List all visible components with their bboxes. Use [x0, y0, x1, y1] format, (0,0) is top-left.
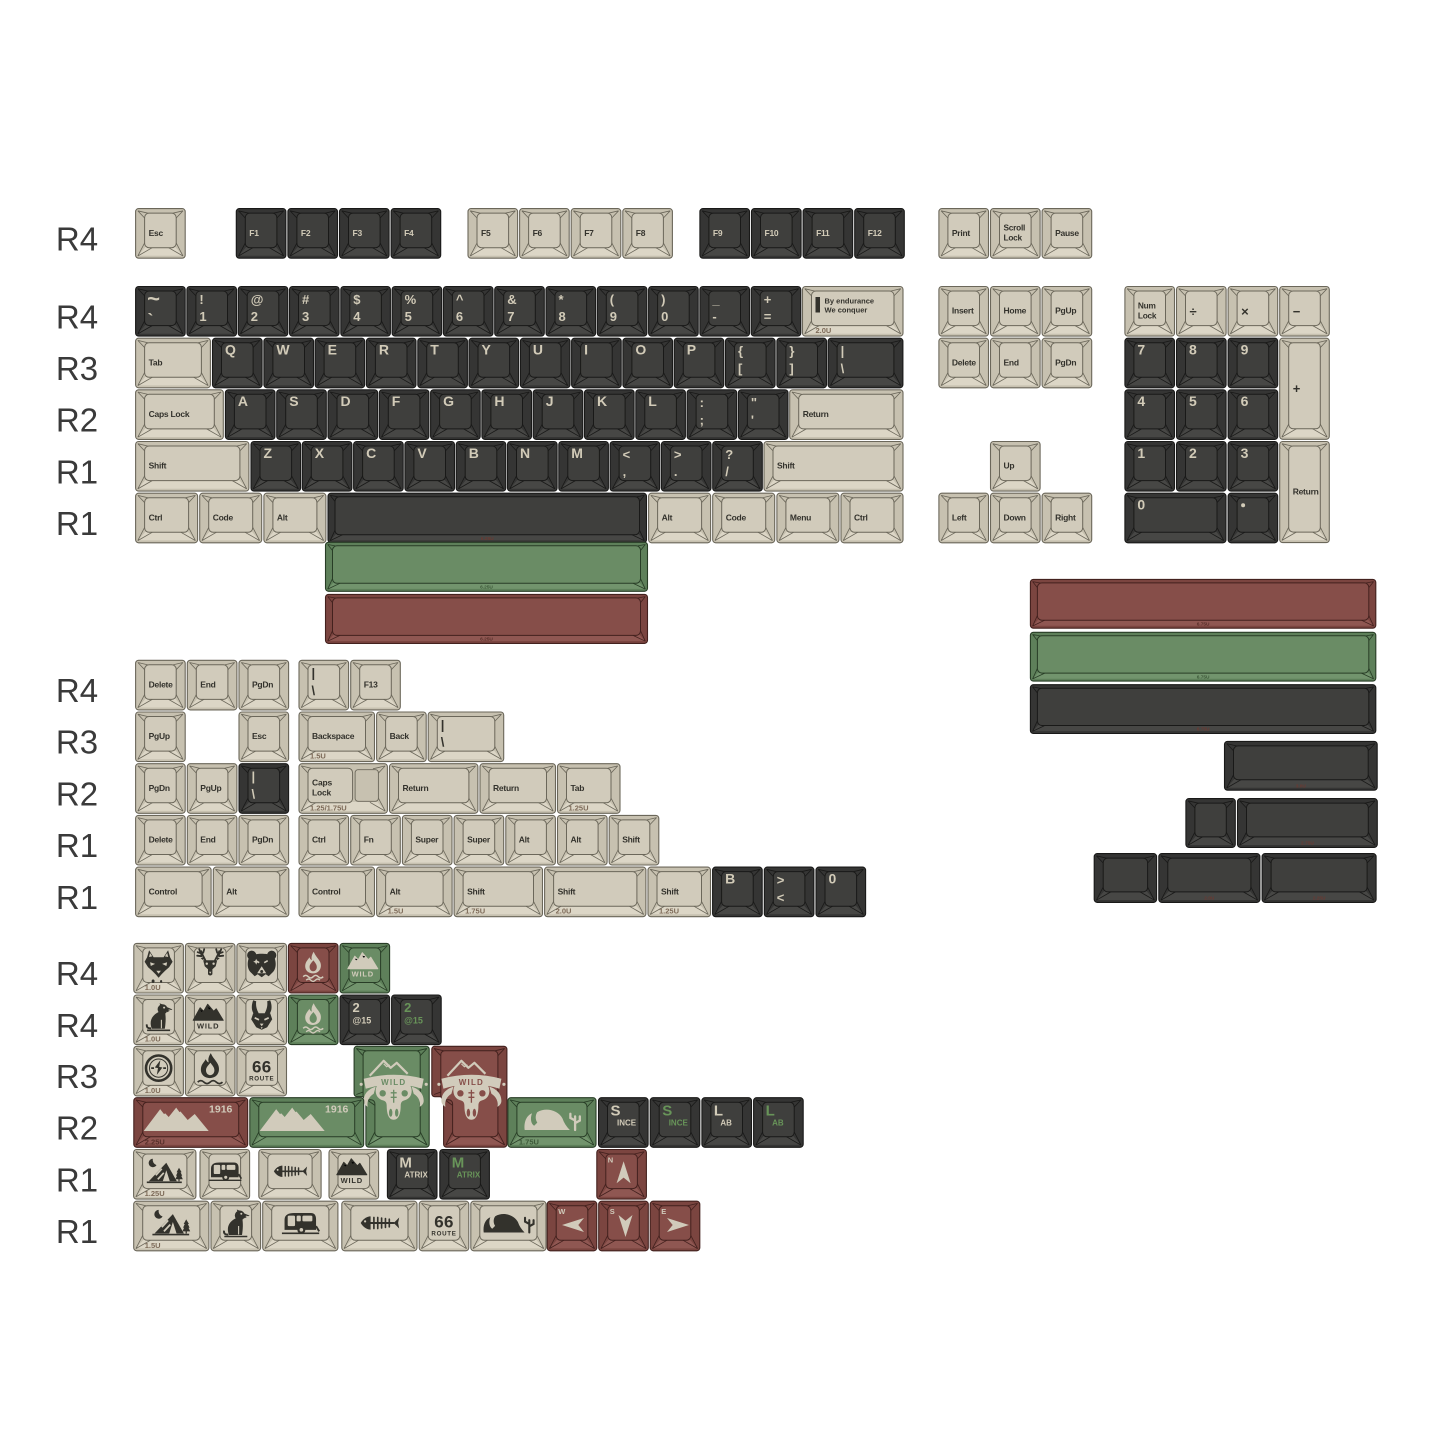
svg-text:Return: Return: [403, 783, 429, 793]
svg-text:F: F: [392, 393, 401, 409]
svg-text:<: <: [623, 447, 631, 462]
svg-text:Lock: Lock: [312, 788, 332, 798]
svg-text:ATRIX: ATRIX: [457, 1171, 481, 1180]
svg-text:1.25U: 1.25U: [569, 803, 589, 812]
svg-text:0: 0: [1137, 497, 1145, 513]
svg-text:Shift: Shift: [558, 886, 576, 896]
svg-text:Shift: Shift: [777, 461, 795, 471]
svg-text:B: B: [469, 445, 479, 461]
svg-text:Alt: Alt: [571, 835, 582, 845]
svg-text:Insert: Insert: [952, 306, 974, 316]
svg-text:Fn: Fn: [364, 835, 374, 845]
svg-text:Alt: Alt: [226, 886, 237, 896]
svg-text:R4: R4: [56, 1007, 98, 1044]
svg-text:Return: Return: [803, 409, 829, 419]
svg-text:O: O: [635, 342, 646, 358]
svg-text:INCE: INCE: [669, 1119, 689, 1128]
svg-text:WILD: WILD: [459, 1078, 484, 1087]
svg-text:F9: F9: [713, 228, 723, 238]
svg-text:!: !: [199, 292, 203, 307]
svg-text:By endurance: By endurance: [825, 297, 875, 306]
svg-text:}: }: [789, 344, 794, 359]
svg-text:R4: R4: [56, 672, 98, 709]
svg-text:Caps Lock: Caps Lock: [149, 409, 190, 419]
svg-text:3: 3: [302, 309, 309, 324]
svg-text:_: _: [711, 292, 720, 307]
svg-text:?: ?: [725, 447, 733, 462]
svg-text:': ': [751, 413, 754, 428]
svg-text:PgDn: PgDn: [252, 835, 273, 845]
svg-text:R1: R1: [56, 827, 98, 864]
svg-text:Z: Z: [264, 445, 273, 461]
svg-text:;: ;: [700, 413, 704, 428]
svg-text:2: 2: [353, 1000, 360, 1015]
svg-text:R1: R1: [56, 505, 98, 542]
svg-text:R2: R2: [56, 775, 98, 812]
svg-text:\: \: [841, 361, 845, 376]
svg-text:Num: Num: [1138, 300, 1156, 310]
svg-text:@: @: [251, 292, 264, 307]
svg-text:S: S: [610, 1207, 615, 1216]
svg-text:WILD: WILD: [352, 970, 374, 979]
svg-text:|: |: [441, 717, 445, 732]
svg-text:ROUTE: ROUTE: [249, 1076, 274, 1083]
svg-text:3.0U: 3.0U: [1296, 783, 1307, 789]
svg-text:8: 8: [559, 309, 566, 324]
svg-text:7: 7: [1137, 342, 1145, 358]
svg-text:PgUp: PgUp: [149, 731, 170, 741]
svg-text:1.75U: 1.75U: [519, 1137, 539, 1146]
svg-text:C: C: [366, 445, 376, 461]
svg-text:AB: AB: [720, 1119, 732, 1128]
svg-text:6.75U: 6.75U: [1197, 727, 1210, 733]
svg-text:F1: F1: [249, 228, 259, 238]
svg-text:0: 0: [829, 870, 837, 886]
svg-text:2: 2: [404, 1000, 411, 1015]
svg-text:@15: @15: [404, 1016, 423, 1026]
svg-text:Back: Back: [390, 731, 410, 741]
svg-text:Return: Return: [493, 783, 519, 793]
svg-text:PgUp: PgUp: [200, 783, 221, 793]
svg-text:E: E: [661, 1207, 666, 1216]
svg-text:Home: Home: [1004, 306, 1027, 316]
svg-text:Shift: Shift: [149, 461, 167, 471]
svg-text:`: `: [148, 310, 154, 329]
svg-text:6.25U: 6.25U: [480, 637, 493, 643]
svg-text:R2: R2: [56, 1110, 98, 1147]
svg-text:Delete: Delete: [149, 680, 174, 690]
svg-text:2.0U: 2.0U: [816, 326, 832, 335]
svg-text:L: L: [714, 1103, 723, 1120]
svg-text:1.0U: 1.0U: [145, 1035, 161, 1044]
svg-text:Backspace: Backspace: [312, 731, 355, 741]
svg-text:F3: F3: [353, 228, 363, 238]
svg-text:F12: F12: [868, 228, 882, 238]
svg-text:F11: F11: [816, 228, 830, 238]
svg-text:&: &: [507, 292, 516, 307]
svg-text:2.25U: 2.25U: [1313, 896, 1326, 902]
svg-text:@15: @15: [353, 1016, 372, 1026]
svg-text:S: S: [662, 1103, 672, 1120]
svg-text:-: -: [712, 309, 716, 324]
svg-text:3: 3: [1241, 445, 1249, 461]
svg-text:+: +: [764, 292, 772, 307]
svg-text:Menu: Menu: [790, 512, 811, 522]
svg-text:F6: F6: [533, 228, 543, 238]
svg-text:|: |: [312, 666, 316, 681]
svg-text:End: End: [200, 835, 215, 845]
svg-text:=: =: [764, 309, 772, 324]
svg-text:K: K: [597, 393, 607, 409]
svg-text:Alt: Alt: [519, 835, 530, 845]
svg-text:M: M: [452, 1155, 465, 1172]
svg-text:Delete: Delete: [952, 357, 977, 367]
svg-text:(: (: [610, 292, 615, 307]
svg-text:÷: ÷: [1190, 304, 1197, 319]
svg-text:9: 9: [1241, 342, 1249, 358]
svg-text:1.5U: 1.5U: [388, 907, 404, 916]
svg-text:H: H: [494, 393, 504, 409]
svg-text:R2: R2: [56, 402, 98, 439]
svg-text:Esc: Esc: [252, 731, 267, 741]
svg-text:Up: Up: [1004, 461, 1015, 471]
svg-text:PgDn: PgDn: [1055, 357, 1076, 367]
svg-text:1.0U: 1.0U: [145, 1086, 161, 1095]
svg-text:L: L: [648, 393, 657, 409]
svg-text:PgUp: PgUp: [1055, 306, 1076, 316]
svg-text:S: S: [611, 1103, 621, 1120]
svg-text:5: 5: [405, 309, 412, 324]
svg-text:V: V: [417, 445, 427, 461]
svg-text:W: W: [276, 342, 290, 358]
svg-text:F2: F2: [301, 228, 311, 238]
svg-text:Ctrl: Ctrl: [854, 512, 868, 522]
svg-text:ROUTE: ROUTE: [431, 1231, 456, 1238]
svg-text:Print: Print: [952, 228, 971, 238]
svg-text:2.0U: 2.0U: [556, 907, 572, 916]
svg-text:U: U: [533, 342, 543, 358]
svg-text::: :: [700, 395, 704, 410]
svg-text:\: \: [252, 786, 256, 801]
svg-text:2: 2: [1189, 445, 1197, 461]
svg-text:Lock: Lock: [1004, 232, 1023, 242]
svg-text:PgDn: PgDn: [252, 680, 273, 690]
svg-text:INCE: INCE: [617, 1119, 637, 1128]
svg-text:6.25U: 6.25U: [481, 536, 494, 542]
svg-text:B: B: [725, 870, 735, 886]
svg-text:R3: R3: [56, 350, 98, 387]
svg-text:1: 1: [199, 309, 206, 324]
svg-text:Alt: Alt: [662, 512, 673, 522]
svg-text:|: |: [841, 344, 845, 359]
svg-text:Super: Super: [415, 835, 439, 845]
svg-text:S: S: [289, 393, 298, 409]
svg-text:G: G: [443, 393, 454, 409]
svg-text:Y: Y: [482, 342, 492, 358]
svg-text:N: N: [608, 1156, 613, 1165]
svg-text:R1: R1: [56, 453, 98, 490]
svg-text:2.75U: 2.75U: [1301, 841, 1314, 847]
svg-text:5: 5: [1189, 393, 1197, 409]
svg-text:A: A: [238, 393, 248, 409]
svg-text:66: 66: [252, 1058, 272, 1077]
svg-text:Super: Super: [467, 835, 491, 845]
svg-text:%: %: [405, 292, 417, 307]
svg-text:We conquer: We conquer: [825, 306, 868, 315]
svg-text:P: P: [687, 342, 696, 358]
svg-text:>: >: [777, 872, 785, 887]
svg-text:6.25U: 6.25U: [480, 585, 493, 591]
svg-text:^: ^: [456, 292, 464, 307]
svg-text:6.75U: 6.75U: [1197, 621, 1210, 627]
svg-text:ATRIX: ATRIX: [404, 1171, 428, 1180]
svg-text:Alt: Alt: [390, 886, 401, 896]
svg-text:2: 2: [251, 309, 258, 324]
svg-text:[: [: [738, 361, 743, 376]
svg-text:Return: Return: [1293, 486, 1319, 496]
svg-text:1916: 1916: [209, 1104, 233, 1116]
svg-text:1.25U: 1.25U: [659, 907, 679, 916]
svg-text:2.0U: 2.0U: [1204, 896, 1215, 902]
svg-text:Tab: Tab: [149, 357, 163, 367]
svg-text:,: ,: [623, 464, 627, 479]
svg-text:N: N: [520, 445, 530, 461]
svg-text:1.75U: 1.75U: [465, 907, 485, 916]
svg-text:Shift: Shift: [661, 886, 679, 896]
svg-text:1.5U: 1.5U: [145, 1241, 161, 1250]
svg-text:1: 1: [1137, 445, 1145, 461]
svg-text:1.5U: 1.5U: [310, 752, 326, 761]
svg-text:Lock: Lock: [1138, 310, 1157, 320]
svg-text:4: 4: [1137, 393, 1145, 409]
svg-text:Shift: Shift: [467, 886, 485, 896]
svg-text:F7: F7: [584, 228, 594, 238]
svg-text:E: E: [328, 342, 337, 358]
svg-text:66: 66: [434, 1213, 454, 1232]
svg-text:R4: R4: [56, 955, 98, 992]
svg-text:Shift: Shift: [622, 835, 640, 845]
svg-text:Ctrl: Ctrl: [149, 512, 163, 522]
svg-text:.: .: [674, 464, 678, 479]
svg-text:WILD: WILD: [381, 1078, 406, 1087]
svg-text:1.0U: 1.0U: [145, 983, 161, 992]
svg-text:End: End: [200, 680, 215, 690]
svg-text:D: D: [341, 393, 351, 409]
svg-text:$: $: [353, 292, 361, 307]
svg-text:Control: Control: [312, 886, 340, 896]
svg-text:T: T: [430, 342, 439, 358]
svg-text:R1: R1: [56, 1161, 98, 1198]
svg-text:I: I: [584, 342, 588, 358]
svg-text:8: 8: [1189, 342, 1197, 358]
svg-text:<: <: [777, 890, 785, 905]
svg-text:2.25U: 2.25U: [145, 1137, 165, 1146]
svg-text:F5: F5: [481, 228, 491, 238]
svg-text:Control: Control: [149, 886, 177, 896]
svg-text:R1: R1: [56, 879, 98, 916]
svg-text:|: |: [252, 769, 256, 784]
svg-text:W: W: [558, 1207, 566, 1216]
svg-text:Code: Code: [726, 512, 747, 522]
svg-text:Code: Code: [213, 512, 234, 522]
svg-text:×: ×: [1241, 304, 1249, 319]
svg-text:Down: Down: [1004, 512, 1026, 522]
svg-text:+: +: [1293, 381, 1301, 396]
svg-text:AB: AB: [772, 1119, 784, 1128]
svg-text:/: /: [725, 464, 729, 479]
svg-text:R1: R1: [56, 1213, 98, 1250]
svg-text:>: >: [674, 447, 682, 462]
svg-text:−: −: [1293, 304, 1301, 319]
svg-text:0: 0: [661, 309, 668, 324]
svg-text:M: M: [571, 445, 583, 461]
svg-text:1.25U: 1.25U: [145, 1189, 165, 1198]
svg-text:Q: Q: [225, 342, 236, 358]
svg-text:Right: Right: [1055, 512, 1076, 522]
svg-text:{: {: [738, 344, 743, 359]
svg-text:R4: R4: [56, 220, 98, 257]
svg-text:Ctrl: Ctrl: [312, 835, 326, 845]
svg-text:Left: Left: [952, 512, 967, 522]
svg-text:7: 7: [507, 309, 514, 324]
svg-text:1.25/1.75U: 1.25/1.75U: [310, 803, 347, 812]
svg-text:1916: 1916: [325, 1104, 349, 1116]
svg-text:F13: F13: [364, 680, 378, 690]
svg-text:M: M: [399, 1155, 412, 1172]
svg-text:9: 9: [610, 309, 617, 324]
svg-text:Scroll: Scroll: [1004, 222, 1026, 232]
svg-text:F8: F8: [636, 228, 646, 238]
svg-text:": ": [751, 395, 757, 410]
svg-text:#: #: [302, 292, 310, 307]
svg-text:WILD: WILD: [341, 1176, 363, 1185]
svg-text:PgDn: PgDn: [149, 783, 170, 793]
svg-text:4: 4: [353, 309, 361, 324]
svg-text:WILD: WILD: [197, 1021, 219, 1030]
svg-text:): ): [661, 292, 665, 307]
svg-text:F4: F4: [404, 228, 414, 238]
svg-text:Alt: Alt: [277, 512, 288, 522]
svg-text:Pause: Pause: [1055, 228, 1079, 238]
svg-text:R3: R3: [56, 724, 98, 761]
svg-text:6.75U: 6.75U: [1197, 674, 1210, 680]
svg-text:~: ~: [147, 286, 160, 311]
svg-text:]: ]: [789, 361, 793, 376]
svg-text:R3: R3: [56, 1058, 98, 1095]
svg-text:\: \: [441, 735, 445, 750]
svg-text:J: J: [546, 393, 554, 409]
svg-text:End: End: [1004, 357, 1019, 367]
svg-text:R: R: [379, 342, 389, 358]
svg-text:6: 6: [1241, 393, 1249, 409]
svg-text:L: L: [766, 1103, 775, 1120]
svg-text:X: X: [315, 445, 325, 461]
svg-text:R4: R4: [56, 298, 98, 335]
svg-text:\: \: [312, 683, 316, 698]
svg-text:F10: F10: [765, 228, 779, 238]
svg-text:6: 6: [456, 309, 463, 324]
svg-text:Delete: Delete: [149, 835, 174, 845]
svg-text:Caps: Caps: [312, 778, 332, 788]
svg-text:Esc: Esc: [149, 228, 164, 238]
svg-text:Tab: Tab: [571, 783, 585, 793]
